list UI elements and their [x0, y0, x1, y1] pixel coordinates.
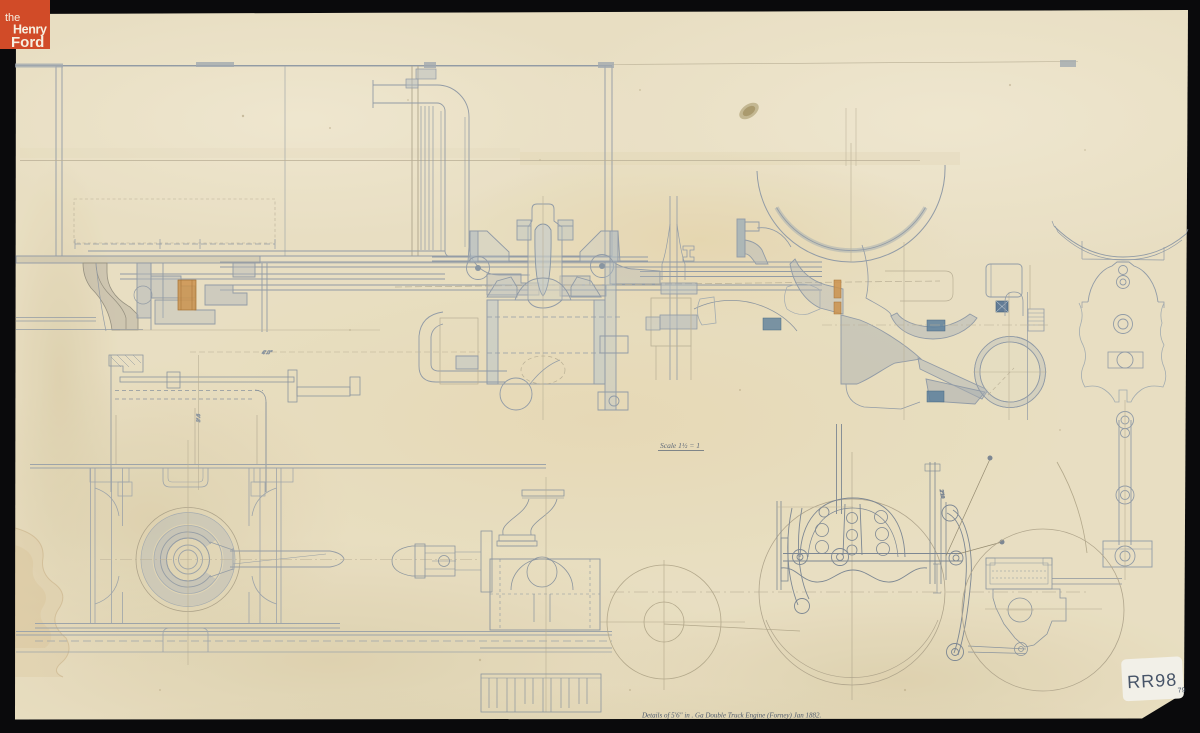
svg-text:Details of 5'6" in . Ga Doubl: Details of 5'6" in . Ga Double Truck Eng…: [641, 712, 821, 720]
svg-text:Scale 1½ = 1: Scale 1½ = 1: [660, 441, 700, 450]
svg-text:RR98: RR98: [1127, 670, 1178, 693]
svg-text:Ford: Ford: [11, 34, 44, 51]
svg-text:79: 79: [1178, 687, 1186, 694]
